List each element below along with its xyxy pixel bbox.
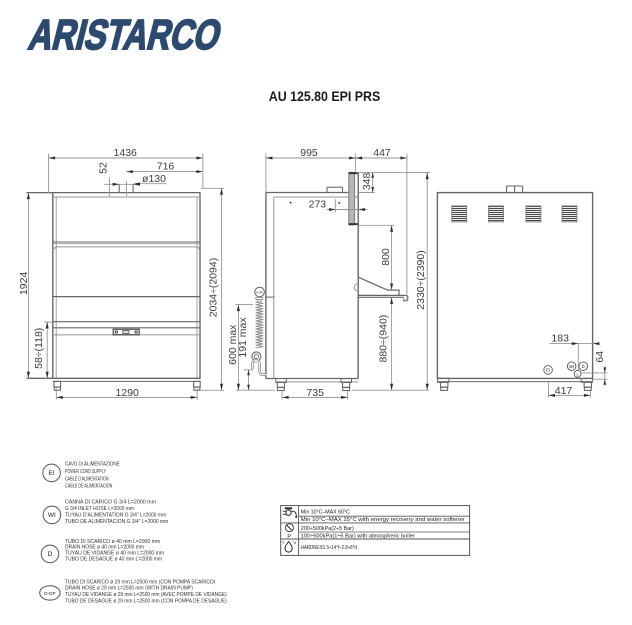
svg-text:TUBO DE DESAGUE ø 29 mm L=2500: TUBO DE DESAGUE ø 29 mm L=2500 mm (CON P… [65,599,227,605]
svg-text:WI: WI [569,364,574,369]
svg-text:CAVO DI ALIMENTAZIONE: CAVO DI ALIMENTAZIONE [65,462,120,468]
svg-text:52: 52 [98,162,110,174]
svg-text:D-DP: D-DP [44,591,55,596]
svg-text:°f: °f [282,541,284,545]
svg-text:191 max: 191 max [237,317,249,358]
svg-text:DRAIN HOSE ø 29 mm L=2500 mm (: DRAIN HOSE ø 29 mm L=2500 mm (WITH DRAIN… [65,586,193,592]
svg-text:D-DP: D-DP [256,290,263,294]
svg-text:D: D [48,551,53,558]
svg-text:°d: °d [293,541,296,545]
svg-text:64: 64 [594,351,606,363]
svg-text:2034÷(2094): 2034÷(2094) [208,258,220,317]
svg-text:CABLE D’ALIMENTATION: CABLE D’ALIMENTATION [65,477,109,483]
svg-text:348: 348 [361,172,373,190]
svg-text:735: 735 [306,387,324,399]
svg-text:POWER CORD SUPPLY: POWER CORD SUPPLY [65,469,106,475]
svg-text:CANNA DI CARICO G 3/4 L=2000 m: CANNA DI CARICO G 3/4 L=2000 mm [65,500,156,506]
svg-text:183: 183 [551,333,569,345]
svg-text:ø130: ø130 [142,173,166,185]
svg-text:880÷(940): 880÷(940) [377,315,389,363]
svg-text:ARISTARCO: ARISTARCO [25,12,227,59]
svg-text:1924: 1924 [18,272,30,296]
svg-text:447: 447 [373,147,391,159]
svg-text:Min 10°C–MAX 25°C with energy: Min 10°C–MAX 25°C with energy recovery a… [301,517,465,523]
svg-text:WI: WI [48,512,56,519]
svg-text:1436: 1436 [114,147,138,159]
svg-text:2330÷(2390): 2330÷(2390) [415,250,427,309]
svg-text:TUBO DE ALIMENTACION G 3/4” L=: TUBO DE ALIMENTACION G 3/4” L=2000 mm [65,519,169,525]
svg-text:800: 800 [380,248,392,266]
svg-text:716: 716 [157,160,175,172]
svg-text:417: 417 [555,385,573,397]
svg-text:EI: EI [49,470,55,477]
svg-text:1290: 1290 [116,387,140,399]
svg-text:995: 995 [300,147,318,159]
svg-text:TUYAU D’ALIMENTATION G 3/4” L=: TUYAU D’ALIMENTATION G 3/4” L=2000 mm [65,513,167,519]
svg-text:EI: EI [546,368,550,373]
svg-text:Min 10°C–MAX 60°C: Min 10°C–MAX 60°C [301,509,350,515]
svg-text:200÷500kPa(2÷5 Bar): 200÷500kPa(2÷5 Bar) [301,526,354,532]
svg-text:P: P [287,534,291,540]
svg-text:CABLE DE ALIMENTACION: CABLE DE ALIMENTACION [65,484,112,490]
svg-text:TUBO DI SCARICO ø 29 mm L=2500: TUBO DI SCARICO ø 29 mm L=2500 mm (CON P… [65,579,216,585]
svg-text:100÷500kPa(1÷5 Bar) with atmos: 100÷500kPa(1÷5 Bar) with atmospheric boi… [301,533,415,539]
svg-text:58÷(118): 58÷(118) [33,328,45,369]
svg-text:D: D [582,364,585,369]
svg-text:273: 273 [309,199,327,211]
svg-text:G 3/4 INLET HOSE L=2000 mm: G 3/4 INLET HOSE L=2000 mm [65,506,134,512]
svg-text:TUBO DE DESAGUE ø 40 mm L=2000: TUBO DE DESAGUE ø 40 mm L=2000 mm [65,556,163,562]
svg-text:AU 125.80 EPI PRS: AU 125.80 EPI PRS [269,89,381,104]
svg-text:TUYAU DE VIDANGE ø 29 mm L=250: TUYAU DE VIDANGE ø 29 mm L=2500 mm (AVEC… [65,592,227,598]
svg-text:HARDNESS 5÷14°f–2.8÷8°d: HARDNESS 5÷14°f–2.8÷8°d [301,545,357,551]
